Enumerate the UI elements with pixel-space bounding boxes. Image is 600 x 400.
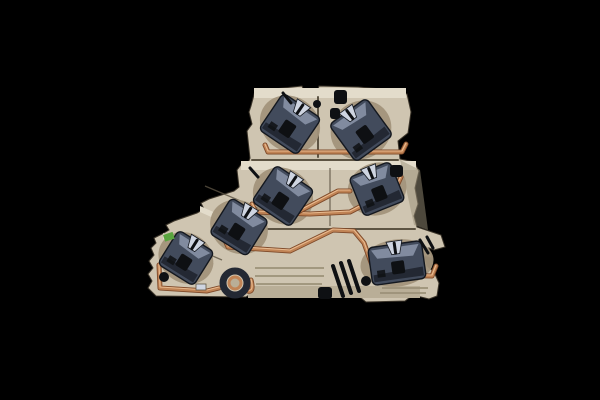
metal-fitting	[196, 284, 206, 290]
photo-stage	[0, 0, 600, 400]
vent-hole-top-right-b	[330, 108, 340, 119]
base-hole-left	[159, 272, 169, 282]
clamp-opening	[391, 260, 406, 275]
terminal-block-photo	[0, 0, 600, 400]
roof-level1	[254, 88, 406, 98]
vent-hole-top-right-a	[334, 90, 347, 104]
rail-slot	[318, 287, 332, 299]
vent-hole-mid-right	[390, 165, 403, 177]
base-hole-right	[361, 276, 371, 286]
foot-ring-clamp-core	[229, 277, 241, 289]
funnel-slit	[394, 243, 395, 253]
center-notch-hole	[313, 100, 321, 108]
clamp-notch	[377, 270, 386, 278]
